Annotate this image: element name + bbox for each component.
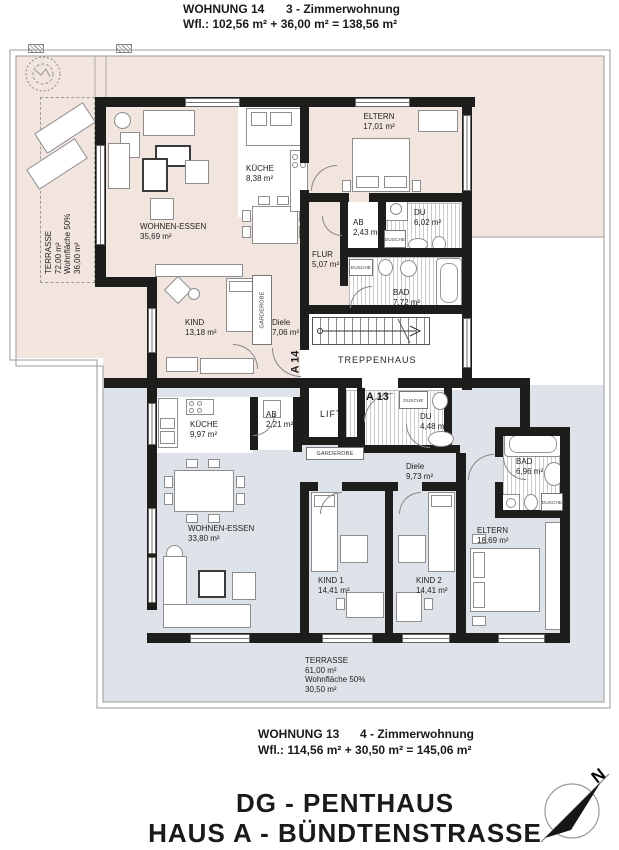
shower-label-box: DUSCHE — [399, 391, 428, 409]
room-label-diele-w13: Diele9,73 m² — [406, 462, 433, 481]
wardrobe — [166, 357, 198, 372]
plan-title-line2: HAUS A - BÜNDTENSTRASSE — [85, 818, 605, 849]
stove-burner — [292, 162, 298, 168]
chair — [164, 476, 173, 488]
wall — [300, 107, 309, 163]
room-label-du-w14: DU6,02 m² — [414, 208, 441, 227]
stove-burner — [292, 154, 298, 160]
header-apartment-number: WOHNUNG 14 — [183, 2, 264, 16]
terrace-label-w13: TERRASSE 61,00 m² Wohnfläche 50% 30,50 m… — [305, 656, 365, 694]
armchair — [150, 198, 174, 220]
garderobe-label-w14: GARDEROBE — [259, 292, 265, 329]
nightstand — [412, 180, 421, 192]
wall — [385, 491, 393, 643]
window — [148, 508, 156, 554]
wall — [342, 482, 398, 491]
footer-apartment-type: 4 - Zimmerwohnung — [360, 727, 474, 741]
chair — [186, 514, 198, 523]
room-label-kueche-w14: KÜCHE8,38 m² — [246, 164, 274, 183]
chair — [336, 598, 345, 610]
chair — [424, 598, 433, 610]
window — [148, 308, 156, 353]
room-label-kind-w14: KIND13,18 m² — [185, 318, 217, 337]
chair — [242, 226, 251, 238]
washbasin — [428, 431, 454, 447]
toilet — [524, 494, 538, 511]
coffee-table — [142, 158, 168, 192]
wall — [95, 277, 157, 287]
compass-icon: N — [535, 762, 617, 848]
wall — [104, 378, 310, 388]
chair — [242, 210, 251, 222]
wall — [300, 482, 309, 643]
plant — [114, 112, 131, 129]
wall — [340, 202, 348, 286]
washbasin — [400, 260, 417, 277]
armchair — [185, 160, 209, 184]
kitchen-sink — [160, 418, 175, 429]
wall — [309, 193, 349, 202]
header-apartment-type: 3 - Zimmerwohnung — [286, 2, 400, 16]
bathtub-inner — [440, 263, 458, 303]
room-label-wohnen-w14: WOHNEN-ESSEN35,69 m² — [140, 222, 206, 241]
chair — [208, 514, 220, 523]
roof-vent — [28, 44, 44, 53]
pillow — [473, 582, 485, 608]
shower-label-box: DUSCHE — [384, 230, 406, 248]
room-label-eltern-w13: ELTERN18,69 m² — [477, 526, 509, 545]
pillow — [384, 176, 407, 188]
sofa — [143, 110, 195, 136]
dining-table — [174, 470, 234, 512]
footer-area-line: Wfl.: 114,56 m² + 30,50 m² = 145,06 m² — [258, 743, 471, 757]
chair — [277, 196, 289, 205]
wall — [495, 427, 503, 457]
stove-burner — [197, 408, 202, 413]
room-label-eltern-w14: ELTERN17,01 m² — [348, 112, 410, 131]
pillow — [356, 176, 379, 188]
terrace-door-window — [322, 634, 373, 643]
wall — [345, 248, 472, 257]
washbasin — [506, 498, 516, 508]
room-label-ab-w13: AB2,21 m² — [266, 410, 293, 429]
wall — [520, 388, 530, 432]
chair — [258, 196, 270, 205]
entry-door-label-w13: A 13 — [366, 391, 389, 403]
window — [148, 557, 156, 603]
terrace-door-window — [96, 145, 105, 245]
roof-vent — [116, 44, 132, 53]
chair — [164, 493, 173, 505]
terrace-label-w14: TERRASSE 72,00 m² Wohnfläche 50% 36,00 m… — [44, 184, 82, 274]
sofa — [163, 604, 251, 628]
stairwell-label: TREPPENHAUS — [338, 356, 417, 366]
room-label-ab-w14: AB2,43 m² — [353, 218, 380, 237]
wall — [560, 427, 570, 643]
wall — [369, 193, 472, 202]
lift-label: LIFT — [320, 410, 343, 420]
terrace-door-window — [402, 634, 450, 643]
stove-burner — [197, 401, 202, 406]
nightstand — [342, 180, 351, 192]
terrace-door-window — [190, 634, 250, 643]
room-label-bad-w14: BAD7,72 m² — [393, 288, 420, 307]
bathtub-inner — [509, 435, 557, 453]
stairs-direction-arrow — [312, 317, 430, 345]
wall — [300, 190, 309, 310]
stove-burner — [189, 408, 194, 413]
wall — [495, 427, 570, 436]
window — [355, 98, 410, 107]
tv-sideboard — [232, 572, 256, 600]
compass-north-letter: N — [588, 765, 609, 788]
wall — [398, 378, 530, 388]
room-label-diele-w14: Diele7,06 m² — [272, 318, 299, 337]
floorplan-page: { "header": {"apt":"WOHNUNG 14","type":"… — [0, 0, 619, 850]
pillow — [229, 281, 253, 292]
wall — [495, 510, 570, 518]
table — [340, 535, 368, 563]
wall — [440, 305, 472, 314]
window — [185, 98, 240, 107]
plan-title-line1: DG - PENTHAUS — [85, 788, 605, 819]
kitchen-sink — [160, 431, 175, 444]
garderobe-label-w13: GARDEROBE — [306, 447, 364, 460]
room-label-du-w13: DU4,48 m² — [420, 412, 447, 431]
wardrobe — [418, 110, 458, 132]
window — [463, 115, 471, 191]
chair — [236, 476, 245, 488]
coffee-table — [198, 570, 226, 598]
toilet — [432, 392, 448, 410]
window — [463, 318, 471, 368]
shower-label-box: DUSCHE — [541, 493, 563, 511]
wall — [300, 305, 309, 350]
chair — [236, 493, 245, 505]
kitchen-sink — [270, 112, 292, 126]
shower-drain — [390, 203, 402, 215]
terrace-door-window — [498, 634, 545, 643]
wall — [95, 97, 475, 107]
sofa — [108, 143, 130, 189]
room-label-kind2-w13: KIND 214,41 m² — [416, 576, 448, 595]
window — [148, 403, 156, 445]
wall — [456, 453, 466, 643]
wall — [422, 482, 456, 491]
desk — [346, 592, 384, 618]
wardrobe-closet-w14: GARDEROBE — [252, 275, 272, 345]
nightstand — [472, 616, 486, 626]
wall — [300, 437, 365, 445]
toilet — [378, 259, 393, 276]
pillow — [473, 552, 485, 578]
wall — [300, 482, 318, 491]
footer-apartment-number: WOHNUNG 13 — [258, 727, 339, 741]
shower-label-box: DUSCHE — [349, 259, 373, 276]
header-area-line: Wfl.: 102,56 m² + 36,00 m² = 138,56 m² — [183, 17, 397, 31]
chair — [186, 459, 198, 468]
stove-burner — [189, 401, 194, 406]
entry-door-label-w14: A 14 — [289, 351, 301, 374]
wall — [300, 378, 362, 388]
table — [398, 535, 426, 563]
stool — [188, 288, 200, 300]
sideboard — [155, 264, 243, 277]
room-label-wohnen-w13: WOHNEN-ESSEN33,80 m² — [188, 524, 254, 543]
chair — [208, 459, 220, 468]
room-label-kind1-w13: KIND 114,41 m² — [318, 576, 350, 595]
room-label-flur-w14: FLUR5,07 m² — [312, 250, 339, 269]
wardrobe — [545, 522, 561, 630]
room-label-bad-w13: BAD6,96 m² — [516, 457, 543, 476]
desk — [396, 592, 422, 622]
kitchen-sink — [251, 112, 267, 126]
pillow — [431, 495, 452, 507]
room-label-kueche-w13: KÜCHE9,97 m² — [190, 420, 218, 439]
